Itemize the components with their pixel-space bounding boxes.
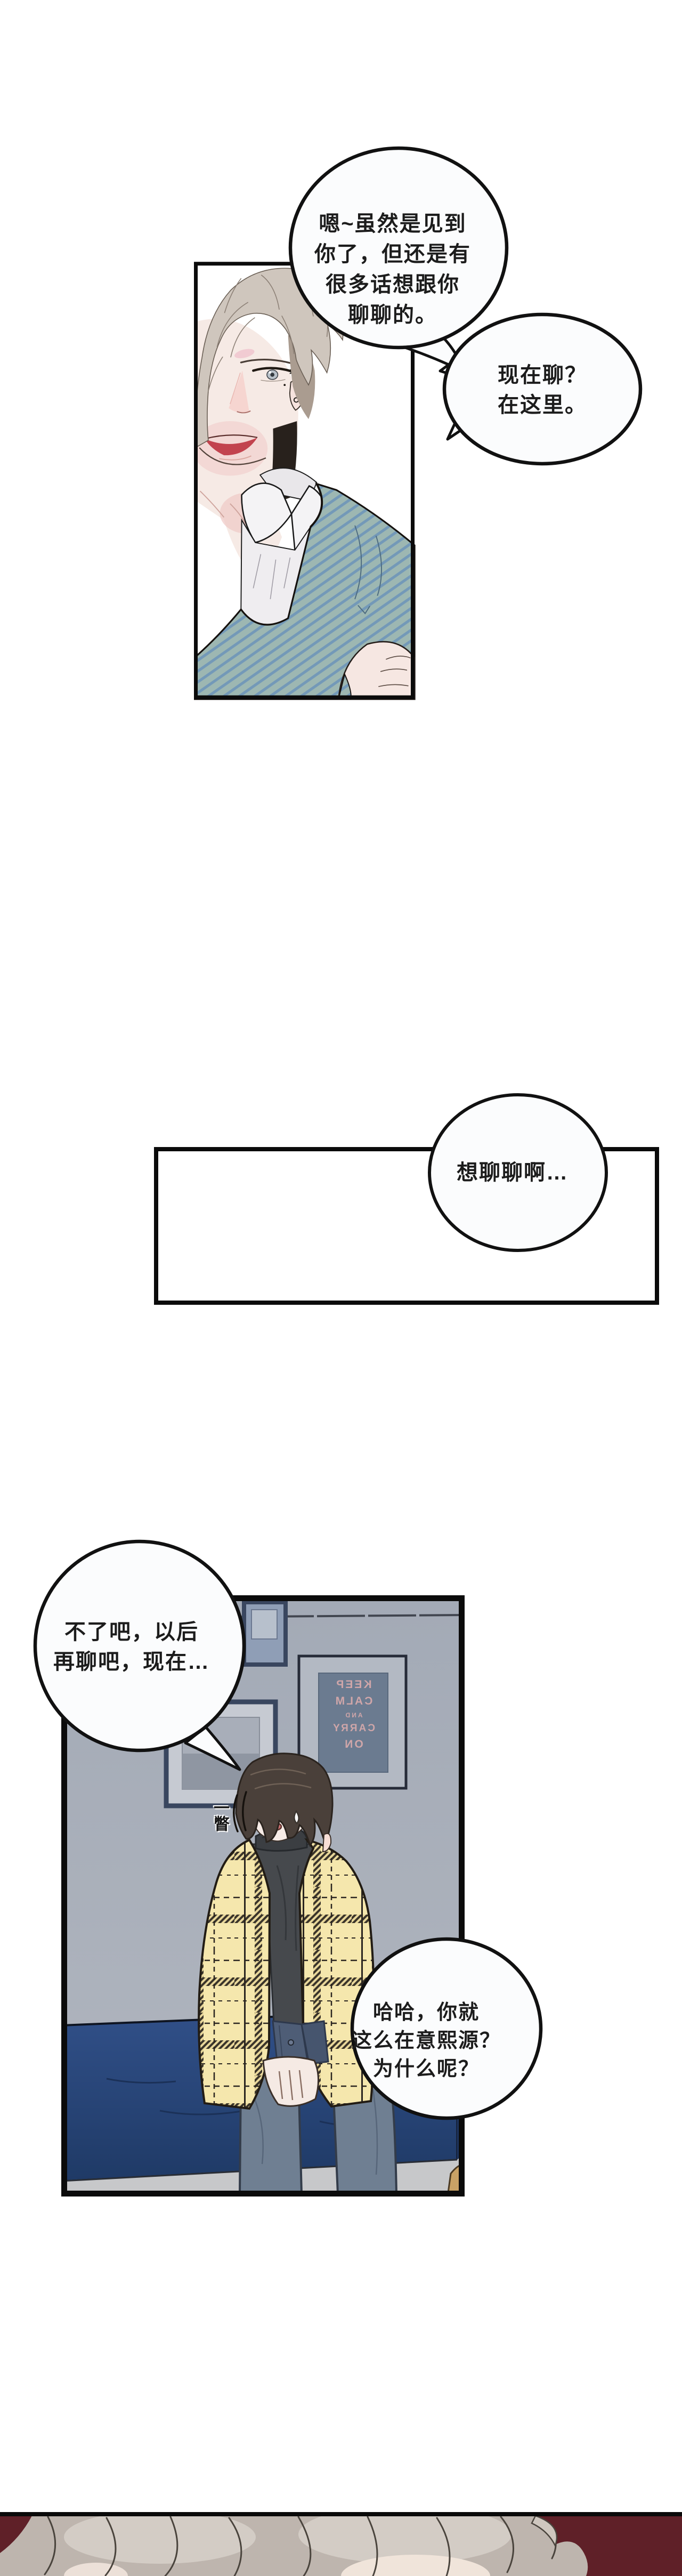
comic-page: KEEP CALM AND CARRY ON 一瞥 嗯~虽然是见到 你了，但还是… [0, 0, 682, 2576]
poster-line: ON [343, 1739, 363, 1750]
poster-line: KEEP [335, 1679, 371, 1690]
keep-calm-poster-text: KEEP CALM AND CARRY ON [319, 1679, 388, 1750]
bubble-1-text: 嗯~虽然是见到 你了，但还是有 很多话想跟你 聊聊的。 [286, 209, 499, 330]
poster-line: AND [344, 1712, 363, 1718]
bottom-panel-artwork [0, 2512, 682, 2576]
sfx-glance-text: 一瞥 [208, 1799, 231, 1831]
bubble-2-text: 现在聊？ 在这里。 [446, 360, 638, 420]
bubble-4-text: 哈哈，你就 这么在意熙源？ 为什么呢？ [329, 1999, 523, 2084]
poster-line: CALM [334, 1695, 373, 1707]
bubble-5-text: 想聊聊啊… [422, 1158, 603, 1188]
bubble-3-text: 不了吧，以后 再聊吧，现在… [25, 1617, 238, 1677]
poster-line: CARRY [331, 1723, 375, 1733]
